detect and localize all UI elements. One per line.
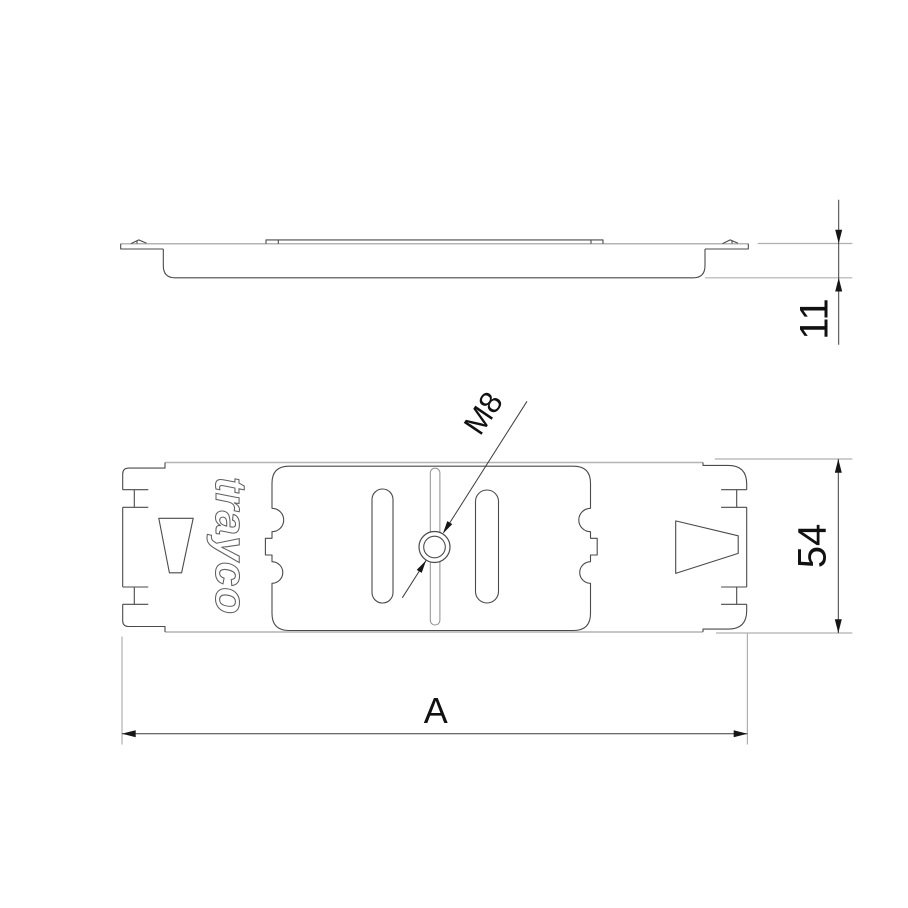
hole-callout: M8	[402, 385, 527, 597]
technical-drawing: 11 trayco M8 54 A	[0, 0, 908, 908]
callout-arrow-upper	[443, 521, 452, 534]
side-body-profile	[163, 249, 705, 278]
plan-view: trayco	[123, 463, 747, 633]
callout-arrow-lower	[417, 560, 426, 573]
drawing-sheet: 11 trayco M8 54 A	[0, 0, 908, 908]
side-right-tab	[705, 244, 748, 249]
length-value: A	[424, 690, 448, 731]
plan-left-end	[123, 463, 165, 633]
width-arrow-bottom	[835, 619, 842, 633]
side-right-barb	[723, 240, 739, 244]
dimension-thickness: 11	[705, 200, 852, 345]
thickness-value: 11	[793, 298, 837, 340]
orientation-arrow-right	[676, 521, 739, 574]
left-slot	[372, 489, 393, 603]
length-arrow-right	[734, 730, 748, 737]
width-value: 54	[791, 524, 835, 569]
side-view	[121, 240, 749, 278]
orientation-arrow-left	[159, 518, 193, 573]
thickness-arrow-bottom	[835, 278, 842, 292]
hole-callout-label: M8	[457, 385, 510, 440]
brand-logo: trayco	[206, 477, 255, 615]
side-left-tab	[121, 244, 164, 249]
side-left-barb	[131, 240, 147, 244]
width-arrow-top	[835, 459, 842, 473]
dimension-length: A	[122, 633, 747, 745]
length-arrow-left	[122, 730, 136, 737]
thickness-arrow-top	[835, 230, 842, 244]
right-slot	[476, 490, 499, 603]
plan-right-end	[703, 463, 747, 633]
dimension-width: 54	[715, 459, 853, 633]
